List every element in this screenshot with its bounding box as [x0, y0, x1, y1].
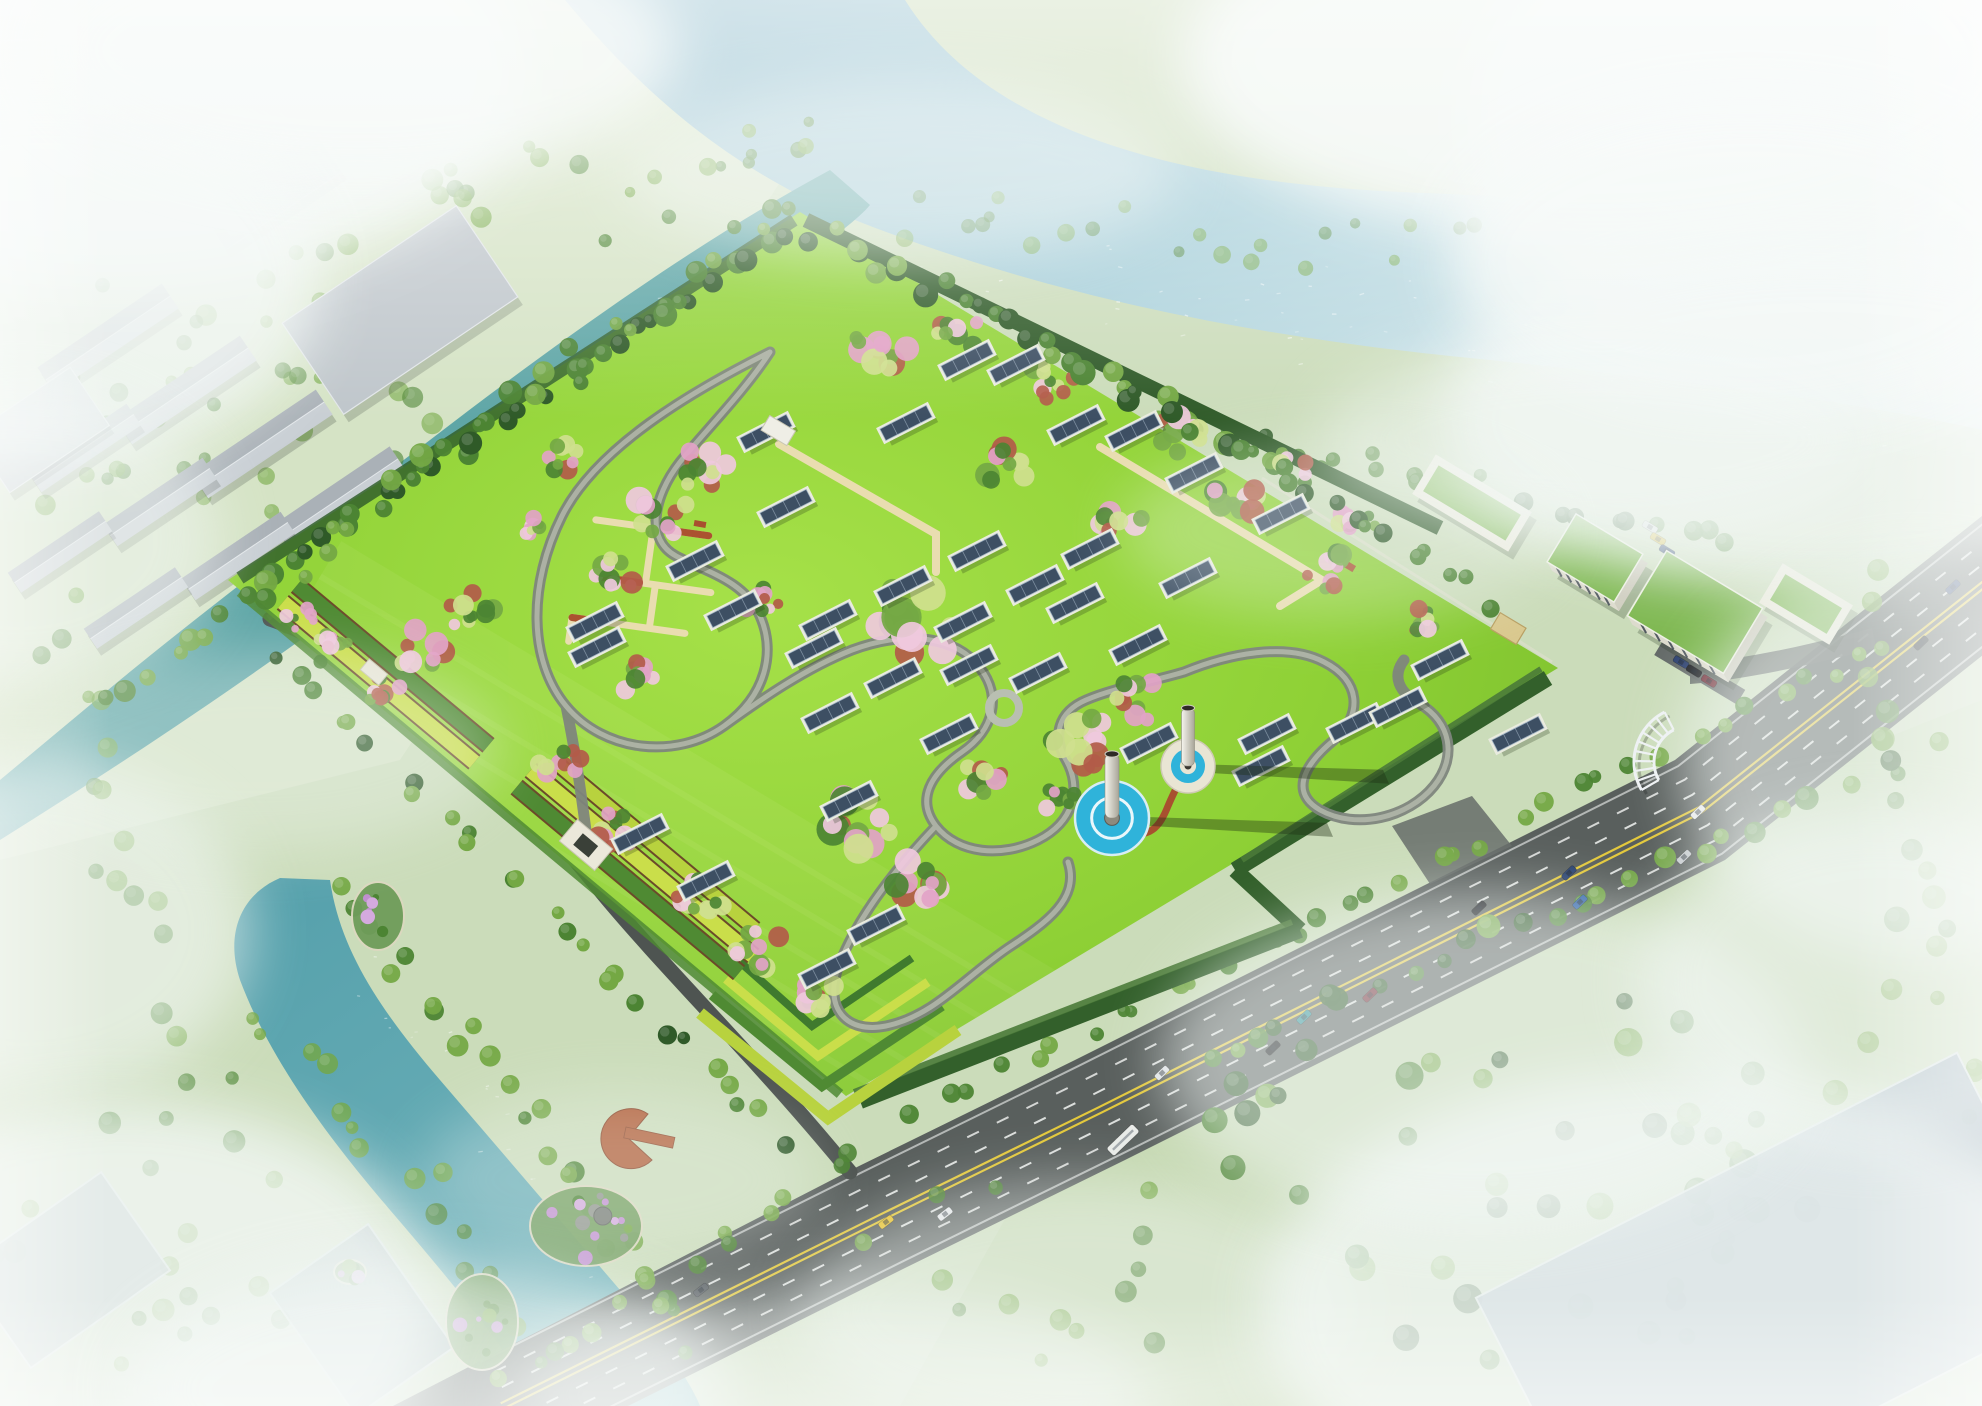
tree-highlight [628, 996, 637, 1005]
blossom-cluster [1083, 754, 1102, 773]
island-base [352, 882, 404, 950]
aerial-rendering [0, 0, 1982, 1406]
tree-highlight [840, 1145, 849, 1154]
blossom-cluster [751, 939, 767, 955]
tree-highlight [334, 1104, 344, 1114]
blossom-cluster [557, 745, 571, 759]
water-sparkle [384, 1018, 387, 1020]
tree-highlight [342, 506, 352, 516]
tree-highlight [1589, 888, 1598, 897]
blossom-cluster [342, 638, 352, 648]
tree-highlight [447, 812, 455, 820]
tree-highlight [1092, 1029, 1099, 1036]
tree-highlight [180, 1075, 189, 1084]
water-sparkle [374, 956, 377, 958]
blossom-cluster [884, 873, 909, 898]
blossom-cluster [926, 876, 939, 889]
tree-highlight [482, 1047, 493, 1058]
tree-highlight [723, 1077, 732, 1086]
mist-veil-left [0, 0, 110, 1406]
tree-highlight [1344, 897, 1352, 905]
blossom-cluster [626, 669, 646, 689]
blossom-cluster [553, 459, 564, 470]
island-vegetation [367, 897, 379, 909]
blossom-cluster [525, 510, 541, 526]
tree-highlight [553, 908, 559, 914]
blossom-cluster [1082, 709, 1102, 729]
tree-highlight [227, 1073, 234, 1080]
tree-highlight [449, 1037, 460, 1048]
tree-highlight [1577, 775, 1586, 784]
tree-highlight [347, 1122, 353, 1128]
blossom-cluster [601, 807, 615, 821]
tree-highlight [1623, 872, 1632, 881]
blossom-cluster [1169, 443, 1186, 460]
tree-highlight [241, 588, 250, 597]
blossom-cluster [677, 496, 695, 514]
blossom-cluster [811, 999, 830, 1018]
blossom-cluster [688, 903, 700, 915]
tree-highlight [182, 630, 193, 641]
tree-highlight [321, 545, 330, 554]
tree-highlight [1483, 601, 1492, 610]
blossom-cluster [1049, 786, 1060, 797]
tree-highlight [944, 1085, 954, 1095]
blossom-cluster [550, 438, 565, 453]
tree-highlight [327, 522, 334, 529]
blossom-cluster [1419, 620, 1437, 638]
blossom-cluster [538, 758, 555, 775]
blossom-cluster [567, 457, 579, 469]
blossom-cluster [681, 478, 694, 491]
tree-highlight [305, 1045, 314, 1054]
blossom-cluster [1038, 799, 1055, 816]
blossom-cluster [976, 762, 994, 780]
blossom-cluster [645, 525, 659, 539]
blossom-cluster [449, 619, 460, 630]
tree-highlight [1034, 1052, 1043, 1061]
blossom-cluster [626, 487, 653, 514]
blossom-cluster [425, 632, 449, 656]
tree-highlight [679, 1033, 685, 1039]
tree-highlight [601, 973, 611, 983]
tree-highlight [255, 1029, 261, 1035]
tree-highlight [383, 471, 393, 481]
tree-highlight [1473, 842, 1481, 850]
tree-highlight [377, 502, 386, 511]
blossom-cluster [844, 834, 874, 864]
blossom-cluster [1116, 675, 1133, 692]
mist-veil-right [1852, 0, 1982, 1406]
tree-highlight [198, 630, 207, 639]
tree-highlight [835, 1159, 843, 1167]
tree-highlight [560, 924, 569, 933]
tree-highlight [1520, 811, 1528, 819]
tree-highlight [412, 445, 424, 457]
tree-highlight [319, 1055, 330, 1066]
tree-highlight [299, 546, 307, 554]
tree-highlight [467, 1019, 475, 1027]
tree-highlight [1393, 876, 1401, 884]
tree-highlight [1437, 848, 1447, 858]
blossom-cluster [921, 890, 939, 908]
tree-highlight [288, 553, 297, 562]
tree-highlight [300, 571, 307, 578]
blossom-cluster [710, 897, 722, 909]
blossom-cluster [304, 608, 317, 621]
tree-highlight [751, 1101, 760, 1110]
tree-highlight [256, 572, 268, 584]
tree-highlight [995, 1058, 1003, 1066]
mist-veil-bottom [0, 1296, 1982, 1406]
vent-tower-cylinder [1105, 754, 1119, 818]
tree-highlight [398, 949, 407, 958]
tree-highlight [474, 419, 481, 426]
blossom-cluster [995, 443, 1011, 459]
blossom-cluster [660, 519, 675, 534]
island-vegetation [377, 926, 388, 937]
tree-highlight [334, 879, 343, 888]
tree-highlight [266, 505, 274, 513]
tree-highlight [1536, 794, 1546, 804]
blossom-cluster [768, 926, 789, 947]
tree-highlight [902, 1106, 912, 1116]
blossom-cluster [688, 458, 707, 477]
blossom-cluster [730, 946, 745, 961]
blossom-cluster [716, 454, 736, 474]
blossom-cluster [895, 848, 921, 874]
tree-highlight [1657, 848, 1668, 859]
tree-highlight [341, 523, 349, 531]
island-vegetation [361, 910, 376, 925]
fog-patch [1120, 440, 1560, 620]
water-sparkle [389, 1027, 391, 1028]
blossom-cluster [982, 471, 1000, 489]
blossom-cluster [322, 637, 340, 655]
tree-highlight [436, 440, 445, 449]
vent-tower-cylinder [1182, 708, 1195, 766]
tree-highlight [1221, 436, 1233, 448]
fog-patch [420, 1090, 820, 1270]
blossom-cluster [897, 622, 927, 652]
aerial-rendering-stage [0, 0, 1982, 1406]
blossom-cluster [1109, 691, 1124, 706]
tree-highlight [213, 607, 222, 616]
blossom-cluster [572, 750, 590, 768]
tree-highlight [313, 529, 323, 539]
blossom-cluster [1014, 466, 1035, 487]
blossom-cluster [603, 551, 618, 566]
tree-highlight [351, 1140, 361, 1150]
blossom-cluster [881, 824, 898, 841]
tree-highlight [176, 647, 183, 654]
mist-veil-top [0, 0, 1982, 420]
tree-highlight [257, 590, 268, 601]
tree-highlight [464, 827, 471, 834]
tree-highlight [426, 999, 435, 1008]
tree-highlight [461, 434, 473, 446]
tree-highlight [407, 473, 415, 481]
blossom-cluster [616, 809, 631, 824]
tree-highlight [509, 872, 518, 881]
tree-highlight [639, 1273, 648, 1282]
tree-highlight [503, 1077, 512, 1086]
tree-highlight [384, 966, 393, 975]
tower-top-opening [1105, 751, 1119, 757]
tree-highlight [1042, 1038, 1051, 1047]
tree-highlight [1183, 425, 1192, 434]
blossom-cluster [756, 958, 769, 971]
tree-highlight [660, 1027, 670, 1037]
tree-highlight [406, 1170, 417, 1181]
blossom-cluster [604, 579, 617, 592]
blossom-cluster [404, 619, 427, 642]
tree-highlight [930, 1188, 938, 1196]
blossom-cluster [569, 444, 584, 459]
blossom-cluster [279, 609, 293, 623]
tower-top-opening [1182, 705, 1195, 711]
tree-highlight [460, 836, 469, 845]
blossom-cluster [477, 600, 495, 618]
blossom-cluster [291, 625, 299, 633]
tree-highlight [711, 1060, 721, 1070]
blossom-cluster [453, 595, 474, 616]
blossom-cluster [1063, 798, 1074, 809]
blossom-cluster [749, 925, 762, 938]
tree-highlight [731, 1098, 738, 1105]
tree-highlight [1621, 758, 1630, 767]
blossom-cluster [681, 442, 699, 460]
tree-highlight [248, 1013, 254, 1019]
tree-highlight [578, 940, 585, 947]
blossom-cluster [621, 571, 643, 593]
tree-highlight [1359, 888, 1367, 896]
